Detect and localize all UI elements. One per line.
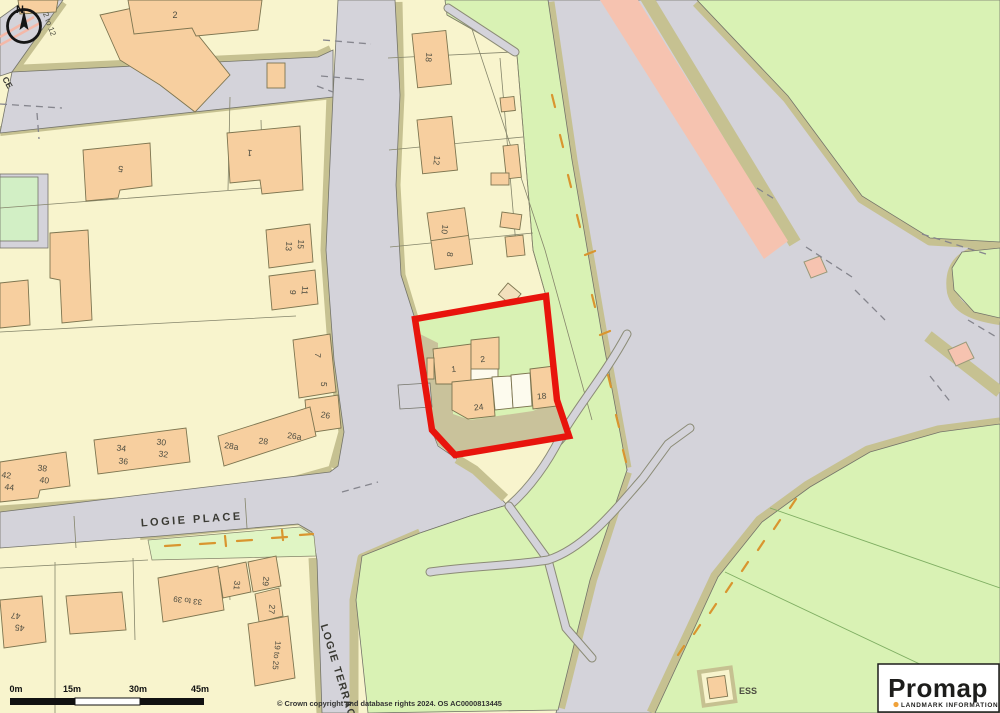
scale-segment-3 — [140, 698, 204, 705]
building-number-label: 30 — [156, 436, 167, 447]
scale-label-15: 15m — [63, 684, 81, 694]
building-number-label: 32 — [158, 448, 169, 459]
copyright-text: © Crown copyright and database rights 20… — [277, 699, 502, 708]
building-number-label: 10 — [439, 224, 450, 235]
building-number-label: 47 — [10, 610, 21, 621]
scale-label-30: 30m — [129, 684, 147, 694]
logo-subtitle-text: LANDMARK INFORMATION — [901, 702, 998, 709]
ess-substation — [699, 668, 735, 706]
green-patch — [0, 177, 38, 241]
site-plan-map: N2 to 122511315911752626a2828a3032343638… — [0, 0, 1000, 713]
building-number-label: 13 — [283, 241, 294, 252]
building-number-label: 24 — [473, 402, 484, 413]
building-number-label: 31 — [231, 580, 242, 591]
building-number-label: 29 — [260, 576, 271, 587]
building-number-label: 26a — [287, 430, 303, 442]
building-number-label: 40 — [39, 474, 50, 485]
logo-dot-icon — [893, 702, 898, 707]
building-number-label: 12 — [431, 155, 442, 166]
scale-label-45: 45m — [191, 684, 209, 694]
building-number-label: 36 — [118, 455, 129, 466]
scale-segment-2 — [75, 698, 140, 705]
logo-brand-text: Promap — [888, 673, 988, 703]
ess-label: ESS — [739, 686, 757, 696]
building-number-label: 27 — [266, 604, 277, 615]
map-canvas: N2 to 122511315911752626a2828a3032343638… — [0, 0, 1000, 713]
promap-logo: Promap LANDMARK INFORMATION — [878, 664, 999, 712]
building-number-label: 18 — [536, 391, 547, 402]
building-number-label: 2 — [172, 10, 177, 20]
scale-segment-1 — [10, 698, 75, 705]
building-number-label: 28 — [258, 435, 269, 446]
building-number-label: 28a — [224, 440, 240, 452]
building-number-label: 38 — [37, 462, 48, 473]
building-number-label: 26 — [320, 409, 331, 421]
building-number-label: 11 — [300, 285, 311, 295]
building-number-label: 34 — [116, 442, 127, 453]
building-number-label: 15 — [295, 239, 306, 250]
compass-n-label: N — [16, 4, 24, 16]
building-number-label: 18 — [423, 52, 434, 63]
scale-label-0: 0m — [9, 684, 22, 694]
building-number-label: 42 — [1, 469, 12, 480]
building-number-label: 44 — [4, 481, 15, 492]
building-number-label: 45 — [14, 622, 25, 633]
